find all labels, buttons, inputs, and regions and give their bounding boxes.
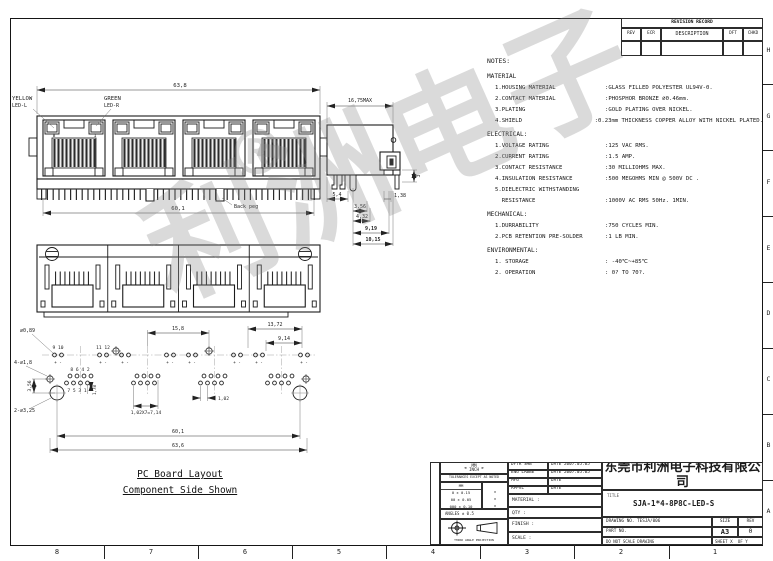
note-label: 3.PLATING — [487, 107, 605, 113]
dim-63-6: 63,6 — [172, 443, 184, 449]
notes-section-electrical: ELECTRICAL: — [487, 129, 763, 143]
pcb-dimensions: ⌀0,89 4-⌀1,8 2-⌀3,25 3,56 1,78 15,8 13,7… — [14, 322, 307, 453]
note-label: 1.VOLTAGE RATING — [487, 143, 605, 149]
part-no-label: PART NO. — [602, 527, 712, 537]
grid-tick — [763, 348, 773, 349]
title-block: ◄ MM INCH ► TOLERANCES EXCEPT AS NOTED M… — [430, 462, 763, 545]
polarity-marks: + - — [188, 360, 196, 365]
note-label: 1. STORAGE — [487, 259, 605, 265]
revision-empty-cell — [661, 41, 723, 56]
grid-tick — [104, 545, 105, 559]
side-view-drawing: 16,75MAX 5,4 1,38 3 3,56 4,32 9,19 10,15 — [325, 88, 475, 263]
note-label: 2.CONTACT MATERIAL — [487, 96, 605, 102]
note-label: 2.PCB RETENTION PRE-SOLDER — [487, 234, 605, 240]
note-value: :1 LB MIN. — [605, 234, 763, 240]
hole-small-label: 4-⌀1,8 — [14, 360, 32, 366]
do-not-scale-note: DO NOT SCALE DRAWING — [602, 537, 712, 545]
hole-led-label: ⌀0,89 — [20, 328, 35, 334]
note-value: :GOLD PLATING OVER NICKEL. — [605, 107, 763, 113]
sign-label: ENG — [511, 470, 519, 475]
grid-tick — [763, 282, 773, 283]
dim-9-14: 9,14 — [278, 336, 290, 342]
yellow-led-label: YELLOW — [12, 96, 33, 102]
yellow-led-sublabel: LED-L — [12, 103, 27, 109]
of-label: OF — [738, 539, 743, 544]
form-strip — [430, 462, 440, 545]
revision-empty-cell — [743, 41, 763, 56]
date-label: DATE — [551, 462, 561, 467]
tol-unit: MM — [441, 483, 481, 490]
polarity-marks: + - — [99, 360, 107, 365]
note-value: :125 VAC RMS. — [605, 143, 763, 149]
grid-tick — [763, 150, 773, 151]
drawing-sheet: { "sheet": { "grid_numbers": ["8","7","6… — [0, 0, 773, 561]
notes-section-environmental: ENVIRONMENTAL: — [487, 245, 763, 259]
pcb-layout-drawing: 9 10 11 12 + - + - + - + - + - + - + - +… — [12, 318, 332, 468]
sign-label: DFTR — [511, 462, 521, 467]
grid-tick — [292, 545, 293, 559]
back-view-drawing — [8, 240, 323, 325]
date-label: DATE — [551, 470, 561, 475]
notes-heading: NOTES: — [487, 55, 763, 71]
pcb-caption-1: PC Board Layout — [90, 469, 270, 480]
projection-label: THIRD ANGLE PROJECTION — [441, 539, 507, 542]
angles-tolerance: ANGLES ± 0.5 — [440, 509, 508, 519]
tol-mark: ± — [483, 496, 507, 503]
grid-tick — [763, 84, 773, 85]
note-label: 5.DIELECTRIC WITHSTANDING — [487, 187, 605, 193]
grid-letter: G — [764, 112, 773, 120]
grid-tick — [763, 480, 773, 481]
revision-table: REVISION RECORD REV ECR DESCRIPTION DFT … — [621, 18, 763, 56]
grid-letter: C — [764, 375, 773, 383]
notes-section-mechanical: MECHANICAL: — [487, 209, 763, 223]
revision-table-title: REVISION RECORD — [621, 18, 763, 28]
grid-letter: E — [764, 244, 773, 252]
sign-label: MFG — [511, 478, 519, 483]
grid-letter: A — [764, 507, 773, 515]
note-value: :30 MILLIOHMS MAX. — [605, 165, 763, 171]
grid-tick — [480, 545, 481, 559]
third-angle-projection-symbol — [441, 520, 507, 536]
grid-number: 3 — [517, 548, 537, 556]
dim-10-15: 10,15 — [365, 237, 380, 243]
units-inch: INCH — [469, 467, 479, 472]
pins-9-10: 9 10 — [52, 345, 63, 351]
dim-15-8: 15,8 — [172, 326, 184, 332]
dim-60-1: 60,1 — [171, 206, 184, 212]
tol-row: 0 ± 0.15 — [441, 490, 481, 497]
note-value: :1.5 AMP. — [605, 154, 763, 160]
dim-60-1-pcb: 60,1 — [172, 429, 184, 435]
polarity-marks: + - — [54, 360, 62, 365]
pin-8-label: 8 — [53, 133, 56, 139]
note-label: 3.CONTACT RESISTANCE — [487, 165, 605, 171]
sheet-cell: SHEET X OF Y — [712, 537, 763, 545]
tol-row: 00 ± 0.05 — [441, 497, 481, 504]
note-value: :0.23mm THICKNESS COPPER ALLOY WITH NICK… — [595, 118, 763, 124]
tol-mark: ± — [483, 489, 507, 496]
dim-13-72: 13,72 — [267, 322, 282, 328]
grid-tick — [198, 545, 199, 559]
dim-16-75: 16,75MAX — [348, 98, 372, 104]
polarity-marks: + - — [255, 360, 263, 365]
pin-1-label: 1 — [94, 133, 97, 139]
grid-number: 2 — [611, 548, 631, 556]
grid-letter: H — [764, 46, 773, 54]
note-label: 2.CURRENT RATING — [487, 154, 605, 160]
grid-letter: D — [764, 309, 773, 317]
note-label: RESISTANCE — [487, 198, 605, 204]
rev-label: REV — [738, 517, 763, 527]
note-label: 2. OPERATION — [487, 270, 605, 276]
revision-empty-cell — [723, 41, 743, 56]
green-led-label: GREEN — [104, 96, 121, 102]
sign-value: SHB — [524, 462, 532, 467]
dim-1-02: 1,02 — [218, 396, 229, 402]
dim-63-8: 63,8 — [173, 83, 187, 89]
dim-1-78: 1,78 — [92, 384, 97, 395]
revision-col-ecr: ECR — [641, 28, 661, 41]
size-value: A3 — [712, 527, 738, 537]
rev-value: 0 — [738, 527, 763, 537]
sheet-y: Y — [745, 539, 748, 544]
sheet-label: SHEET — [715, 539, 728, 544]
dim-3-56: 3,56 — [354, 204, 366, 210]
grid-tick — [386, 545, 387, 559]
note-label: 4.INSULATION RESISTANCE — [487, 176, 605, 182]
revision-empty-cell — [621, 41, 641, 56]
polarity-marks: + - — [121, 360, 129, 365]
revision-col-chkd: CHKD — [743, 28, 763, 41]
pins-11-12: 11 12 — [96, 345, 110, 351]
grid-number: 7 — [141, 548, 161, 556]
units-arrow-left: ◄ — [464, 466, 467, 471]
notes-block: NOTES: MATERIAL 1.HOUSING MATERIAL:GLASS… — [487, 55, 763, 281]
note-value: : -40℃~+85℃ — [605, 259, 763, 265]
tolerance-heading: TOLERANCES EXCEPT AS NOTED — [440, 474, 508, 482]
grid-number: 4 — [423, 548, 443, 556]
projection-cell: THIRD ANGLE PROJECTION — [440, 519, 508, 545]
date-label: DATE — [551, 486, 561, 491]
board-peg — [216, 189, 224, 201]
note-value: :1000V AC RMS 50Hz. 1MIN. — [605, 198, 763, 204]
revision-col-description: DESCRIPTION — [661, 28, 723, 41]
note-value: :PHOSPHOR BRONZE ⌀0.46mm. — [605, 96, 763, 102]
note-label: 4.SHIELD — [487, 118, 595, 124]
revision-empty-cell — [641, 41, 661, 56]
dim-4-32: 4,32 — [356, 214, 368, 220]
front-view-drawing: 63,8 YELLOW LED-L GREEN LED-R 8 1 Back p… — [8, 76, 323, 226]
pins-even: 8 6 4 2 — [70, 367, 90, 373]
date-value: 2007.05.05 — [564, 462, 590, 467]
polarity-marks: + - — [233, 360, 241, 365]
dim-5-4: 5,4 — [332, 192, 341, 198]
revision-col-rev: REV — [621, 28, 641, 41]
grid-number: 5 — [329, 548, 349, 556]
note-label: 1.DURRABILITY — [487, 223, 605, 229]
grid-tick — [669, 545, 670, 559]
sign-label: APPVL — [511, 486, 524, 491]
units-arrow-right: ► — [482, 466, 485, 471]
revision-col-dft: DFT — [723, 28, 743, 41]
finish-label: FINISH : — [508, 518, 602, 532]
grid-tick — [574, 545, 575, 559]
units-cell: ◄ MM INCH ► — [440, 462, 508, 474]
company-name: 东莞市利洲电子科技有限公司 — [602, 462, 763, 490]
note-value: : 0? TO 70?. — [605, 270, 763, 276]
grid-letter: B — [764, 441, 773, 449]
size-label: SIZE — [712, 517, 738, 527]
hole-big-label: 2-⌀3,25 — [14, 408, 35, 414]
pcb-caption-2: Component Side Shown — [90, 485, 270, 496]
dim-1-38: 1,38 — [394, 193, 406, 199]
note-value: :GLASS FILLED POLYESTER UL94V-0. — [605, 85, 763, 91]
dim-9-19: 9,19 — [365, 226, 377, 232]
title-label: TITLE — [607, 494, 619, 499]
dim-3-56-v: 3,56 — [27, 380, 33, 391]
green-led-sublabel: LED-R — [104, 103, 120, 109]
pins-odd: 7 5 3 1 — [67, 388, 87, 394]
polarity-marks: + - — [166, 360, 174, 365]
drawing-title: SJA-1*4-8P8C-LED-S — [633, 500, 714, 509]
back-view-body — [37, 245, 320, 317]
sign-value: LABBE — [521, 470, 534, 475]
polarity-marks: + - — [300, 360, 308, 365]
date-value: 2007.05.05 — [564, 470, 590, 475]
date-label: DATE — [551, 478, 561, 483]
grid-number: 1 — [705, 548, 725, 556]
scale-label: SCALE : — [508, 532, 602, 545]
grid-number: 6 — [235, 548, 255, 556]
grid-letter: F — [764, 178, 773, 186]
dim-3: 3 — [416, 174, 422, 177]
board-peg — [146, 189, 154, 201]
back-peg-label: Back peg — [234, 204, 258, 210]
drawing-no: TESJA/006 — [637, 519, 660, 524]
side-view-body — [327, 125, 400, 191]
drawing-no-label: DRAWING NO. — [606, 519, 634, 524]
grid-tick — [763, 216, 773, 217]
notes-section-material: MATERIAL — [487, 71, 763, 85]
material-label: MATERIAL : — [508, 494, 602, 507]
grid-number: 8 — [47, 548, 67, 556]
note-value: :750 CYCLES MIN. — [605, 223, 763, 229]
grid-tick — [763, 414, 773, 415]
front-view-body — [29, 116, 328, 201]
dim-pitch: 1,02X7=7,14 — [131, 410, 162, 416]
note-value: :500 MEGOHMS MIN @ 500V DC . — [605, 176, 763, 182]
note-label: 1.HOUSING MATERIAL — [487, 85, 605, 91]
sheet-x: X — [730, 539, 733, 544]
qty-label: QTY : — [508, 507, 602, 518]
